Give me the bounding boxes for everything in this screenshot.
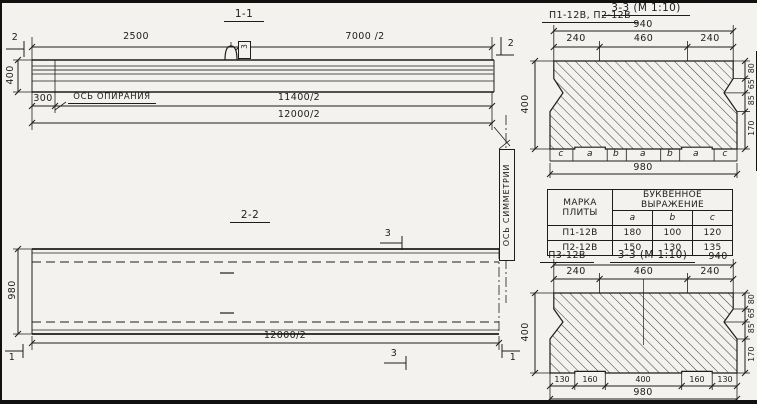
- drawing-sheet: 1-1 2500 7000 /2 2 2 400 300 ОСЬ ОПИРАНИ…: [0, 0, 757, 404]
- table-cell-c: 120: [693, 226, 733, 241]
- view2-marker-1-right: 1: [506, 353, 520, 363]
- section-a-dim-85: 85: [748, 91, 756, 109]
- view1-dim-7000: 7000 /2: [332, 32, 398, 42]
- section-a-letter-b2: b: [660, 150, 680, 159]
- view1-dim-12000: 12000/2: [266, 110, 332, 120]
- view1-dim-400: 400: [6, 63, 16, 87]
- section-a-letter-a2: a: [633, 150, 653, 159]
- table-cell-a: 180: [613, 226, 653, 241]
- table-subcol-b: b: [653, 211, 693, 226]
- view1-dim-2500: 2500: [106, 32, 166, 42]
- section-b-dim-240-left: 240: [553, 267, 599, 277]
- section-a-dim-940: 940: [613, 20, 673, 30]
- view1-section-marker-right: 2: [504, 39, 518, 49]
- view2-title: 2-2: [230, 210, 270, 223]
- view2-marker-1-left: 1: [5, 353, 19, 363]
- section-b-dim-400-mid: 400: [628, 376, 658, 384]
- section-b-dim-130-right: 130: [710, 376, 740, 384]
- section-a-dim-400: 400: [521, 92, 531, 116]
- view1-title: 1-1: [224, 9, 264, 22]
- section-a-dim-460: 460: [600, 34, 687, 44]
- table-header-mark-line2: ПЛИТЫ: [549, 208, 611, 218]
- view2-marker-3-bottom: 3: [387, 349, 401, 359]
- section-b-dim-400: 400: [521, 320, 531, 344]
- section-a-letter-b1: b: [606, 150, 626, 159]
- section-b-dim-170: 170: [748, 345, 756, 363]
- section-a-letter-c1: c: [551, 150, 571, 159]
- view1-dim-300: 300: [30, 94, 56, 104]
- section-a-dim-980: 980: [613, 163, 673, 173]
- section-a-letter-a1: a: [580, 150, 600, 159]
- section-b-dim-130-left: 130: [547, 376, 577, 384]
- axis-of-symmetry-label: ОСЬ СИММЕТРИИ: [499, 149, 515, 261]
- section-b-dim-160-right: 160: [682, 376, 712, 384]
- section-b-dim-940: 940: [696, 252, 740, 262]
- plate-marks-table: МАРКА ПЛИТЫ БУКВЕННОЕ ВЫРАЖЕНИЕ a b c П1…: [547, 189, 733, 256]
- section-b-dim-160-left: 160: [575, 376, 605, 384]
- section-b-dim-460: 460: [600, 267, 687, 277]
- lifting-loop-tag-number: 3: [240, 44, 249, 49]
- section-a-dim-240-right: 240: [687, 34, 733, 44]
- section-a-dim-240-left: 240: [553, 34, 599, 44]
- table-subcol-a: a: [613, 211, 653, 226]
- section-b-dim-85: 85: [748, 319, 756, 337]
- view2-marker-3-top: 3: [381, 229, 395, 239]
- section-b-mark-label: П3-12В: [540, 251, 594, 263]
- table-cell-b: 100: [653, 226, 693, 241]
- table-header-span: БУКВЕННОЕ ВЫРАЖЕНИЕ: [613, 190, 733, 211]
- section-b-dim-980: 980: [613, 388, 673, 398]
- section-a-dim-170: 170: [748, 119, 756, 137]
- section-a-title: 3-3 (М 1:10): [602, 3, 690, 16]
- table-cell-mark: П1-12В: [548, 226, 613, 241]
- table-header-mark-line1: МАРКА: [549, 198, 611, 208]
- view2-dim-12000: 12000/2: [252, 331, 318, 341]
- view2-dim-980: 980: [8, 278, 18, 302]
- view1-dim-11400: 11400/2: [266, 93, 332, 103]
- section-a-letter-c2: c: [715, 150, 735, 159]
- table-header-mark: МАРКА ПЛИТЫ: [548, 190, 613, 226]
- view1-section-marker-left: 2: [8, 33, 22, 43]
- lifting-loop-tag: 3: [238, 41, 251, 59]
- table-subcol-c: c: [693, 211, 733, 226]
- section-b-dim-240-right: 240: [687, 267, 733, 277]
- view1-axis-of-bearing-label: ОСЬ ОПИРАНИЯ: [68, 93, 156, 104]
- section-b-title: 3-3 (М 1:10): [610, 250, 695, 263]
- table-row: П1-12В 180 100 120: [548, 226, 733, 241]
- section-a-letter-a3: a: [686, 150, 706, 159]
